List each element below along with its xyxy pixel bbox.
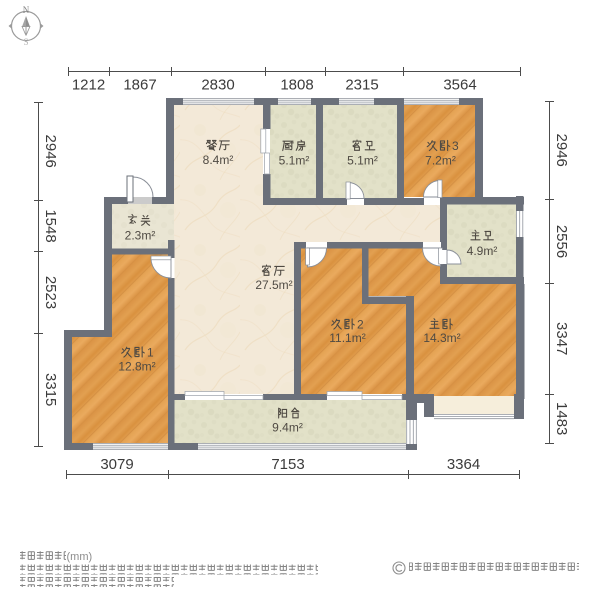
svg-text:3: 3 (452, 139, 459, 153)
svg-text:1808: 1808 (280, 77, 313, 94)
svg-text:5.1m²: 5.1m² (279, 153, 310, 167)
svg-text:2523: 2523 (42, 276, 59, 309)
svg-text:3079: 3079 (100, 456, 133, 473)
svg-text:1212: 1212 (72, 77, 105, 94)
svg-text:2946: 2946 (553, 134, 570, 167)
svg-text:2946: 2946 (42, 135, 59, 168)
svg-text:5.1m²: 5.1m² (347, 153, 378, 167)
svg-text:8.4m²: 8.4m² (203, 153, 234, 167)
svg-text:2830: 2830 (201, 77, 234, 94)
svg-text:27.5m²: 27.5m² (255, 278, 292, 292)
svg-text:3347: 3347 (553, 322, 570, 355)
svg-text:2: 2 (357, 317, 364, 331)
svg-text:3564: 3564 (443, 77, 476, 94)
svg-text:11.1m²: 11.1m² (329, 331, 365, 345)
svg-text:9.4m²: 9.4m² (272, 420, 303, 434)
svg-text:7.2m²: 7.2m² (425, 153, 456, 167)
svg-text:2556: 2556 (553, 225, 570, 258)
svg-text:7153: 7153 (271, 456, 304, 473)
svg-text:S: S (23, 37, 28, 47)
svg-text:2.3m²: 2.3m² (125, 229, 156, 243)
svg-text:4.9m²: 4.9m² (467, 244, 498, 258)
svg-text:(mm): (mm) (67, 551, 93, 563)
svg-text:3364: 3364 (447, 456, 480, 473)
svg-text:1: 1 (147, 345, 154, 359)
svg-text:1483: 1483 (553, 402, 570, 435)
svg-text:2315: 2315 (345, 77, 378, 94)
svg-text:N: N (23, 5, 30, 15)
svg-text:1548: 1548 (42, 209, 59, 242)
svg-text:1867: 1867 (123, 77, 156, 94)
svg-text:14.3m²: 14.3m² (423, 331, 460, 345)
svg-text:12.8m²: 12.8m² (118, 360, 155, 374)
svg-text:3315: 3315 (42, 373, 59, 406)
